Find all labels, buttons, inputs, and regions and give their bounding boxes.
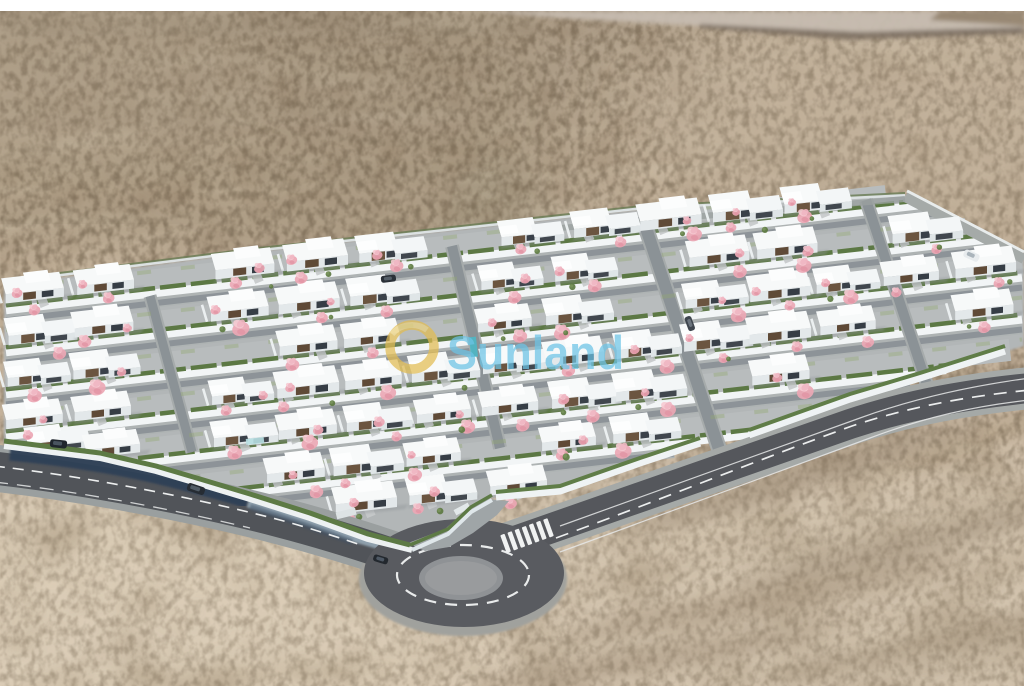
svg-text:Sunland: Sunland <box>447 326 624 379</box>
